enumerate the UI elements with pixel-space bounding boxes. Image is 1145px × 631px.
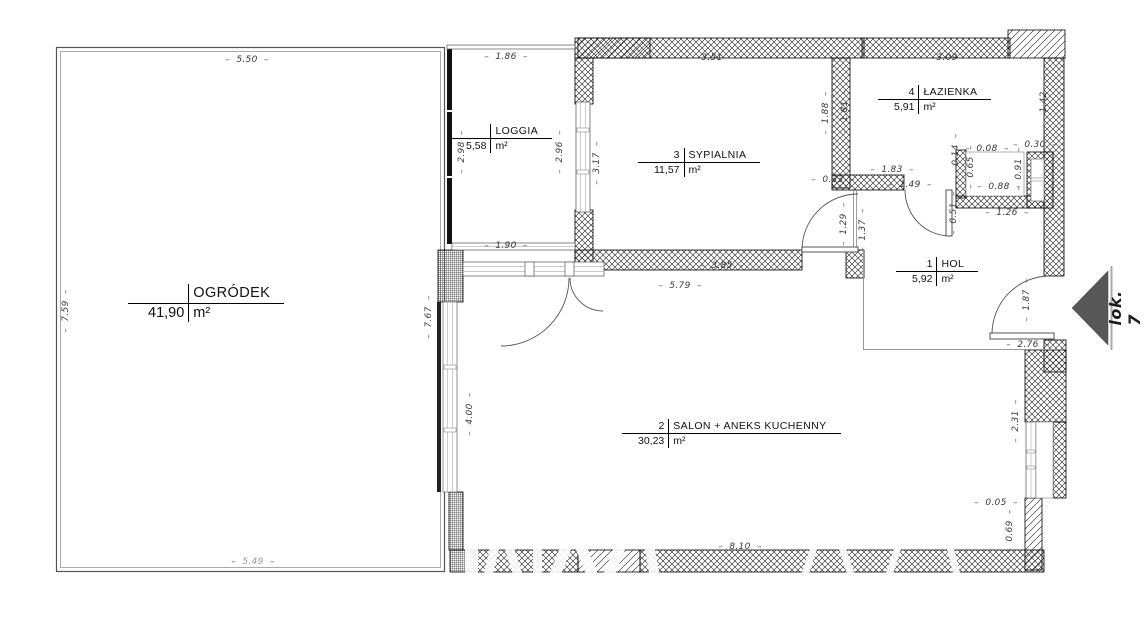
dimension-label: 4.00 [465, 392, 475, 436]
room-name: HOL [937, 257, 978, 272]
entrance-door-leaf [990, 333, 1054, 339]
dimension-label: 3.09 [925, 53, 969, 63]
bedroom-door-arc [802, 194, 858, 250]
entrance-unit-label: lok. 7 [1106, 290, 1144, 325]
room-name: SYPIALNIA [685, 148, 761, 163]
room-unit: m² [669, 434, 840, 448]
dimension-label: 2.76 [1006, 340, 1050, 350]
room-number: 1 [896, 257, 937, 272]
room-label-hol: 1 HOL 5,92 m² [896, 257, 978, 286]
room-number [128, 284, 189, 304]
dimension-label: 1.42 [1039, 80, 1049, 124]
dimension-label: 0.05 [974, 498, 1018, 508]
walls-structural [474, 38, 1066, 572]
dimension-label: 0.88 [977, 182, 1021, 192]
room-name: LOGGIA [491, 124, 552, 139]
dimension-label: 2.98 [457, 130, 467, 174]
dimension-label: 1.90 [484, 241, 528, 251]
dimension-label: 1.81 [840, 89, 850, 133]
dimension-label: 1.83 [870, 165, 914, 175]
room-label-salon: 2 SALON + ANEKS KUCHENNY 30,23 m² [622, 419, 841, 448]
dimension-label: 1.37 [858, 208, 868, 252]
floor-plan: OGRÓDEK 41,90 m² LOGGIA 5,58 m² 3 SYPIAL… [0, 0, 1145, 631]
room-area: 5,92 [896, 272, 937, 286]
dimension-label: 1.26 [985, 208, 1029, 218]
dimension-label: 5.49 [231, 557, 275, 567]
dimension-label: 1.29 [839, 202, 849, 246]
room-area: 41,90 [128, 304, 189, 323]
dimension-label: 5.79 [658, 281, 702, 291]
dimension-label: 8.10 [718, 542, 762, 552]
dimension-label: 0.69 [1005, 509, 1015, 553]
room-unit: m² [685, 163, 761, 177]
room-area: 11,57 [638, 163, 685, 177]
room-unit: m² [189, 304, 284, 323]
dimension-label: 1.88 [821, 91, 831, 135]
dimension-label: 0.33 [811, 175, 855, 185]
room-label-lazienka: 4 ŁAZIENKA 5,91 m² [878, 85, 991, 114]
room-label-ogrodek: OGRÓDEK 41,90 m² [128, 284, 284, 322]
room-label-sypialnia: 3 SYPIALNIA 11,57 m² [638, 148, 760, 177]
dimension-label: 2.31 [1011, 399, 1021, 443]
dimension-label: 1.86 [484, 52, 528, 62]
dimension-label: 3.17 [592, 141, 602, 185]
room-unit: m² [919, 100, 991, 114]
bedroom-door-leaf [802, 247, 858, 252]
dimension-label: 5.50 [225, 55, 269, 65]
loggia-door-arc-right [570, 278, 603, 311]
loggia-door-arc-left [501, 278, 569, 346]
room-unit: m² [491, 139, 552, 153]
room-name: OGRÓDEK [189, 284, 284, 304]
room-unit: m² [937, 272, 978, 286]
room-number: 3 [638, 148, 685, 163]
dimension-label: 7.67 [424, 295, 434, 339]
room-number: 4 [878, 85, 919, 100]
room-area: 5,91 [878, 100, 919, 114]
dimension-label: 2.96 [555, 130, 565, 174]
dimension-label: 7.59 [61, 289, 71, 333]
dimension-label: 1.87 [1022, 278, 1032, 322]
entrance-door-arc [992, 276, 1050, 334]
room-name: SALON + ANEKS KUCHENNY [669, 419, 840, 434]
room-number: 2 [622, 419, 669, 434]
bathroom-door-arc [905, 190, 950, 236]
dimension-label: 1.49 [888, 180, 932, 190]
dimension-label: 0.14 [951, 133, 961, 177]
room-name: ŁAZIENKA [919, 85, 991, 100]
dimension-label: 3.85 [700, 261, 744, 271]
dimension-label: 3.51 [690, 53, 734, 63]
room-area: 30,23 [622, 434, 669, 448]
dimension-label: 0.65 [966, 145, 976, 189]
dimension-label: 0.51 [949, 191, 959, 235]
